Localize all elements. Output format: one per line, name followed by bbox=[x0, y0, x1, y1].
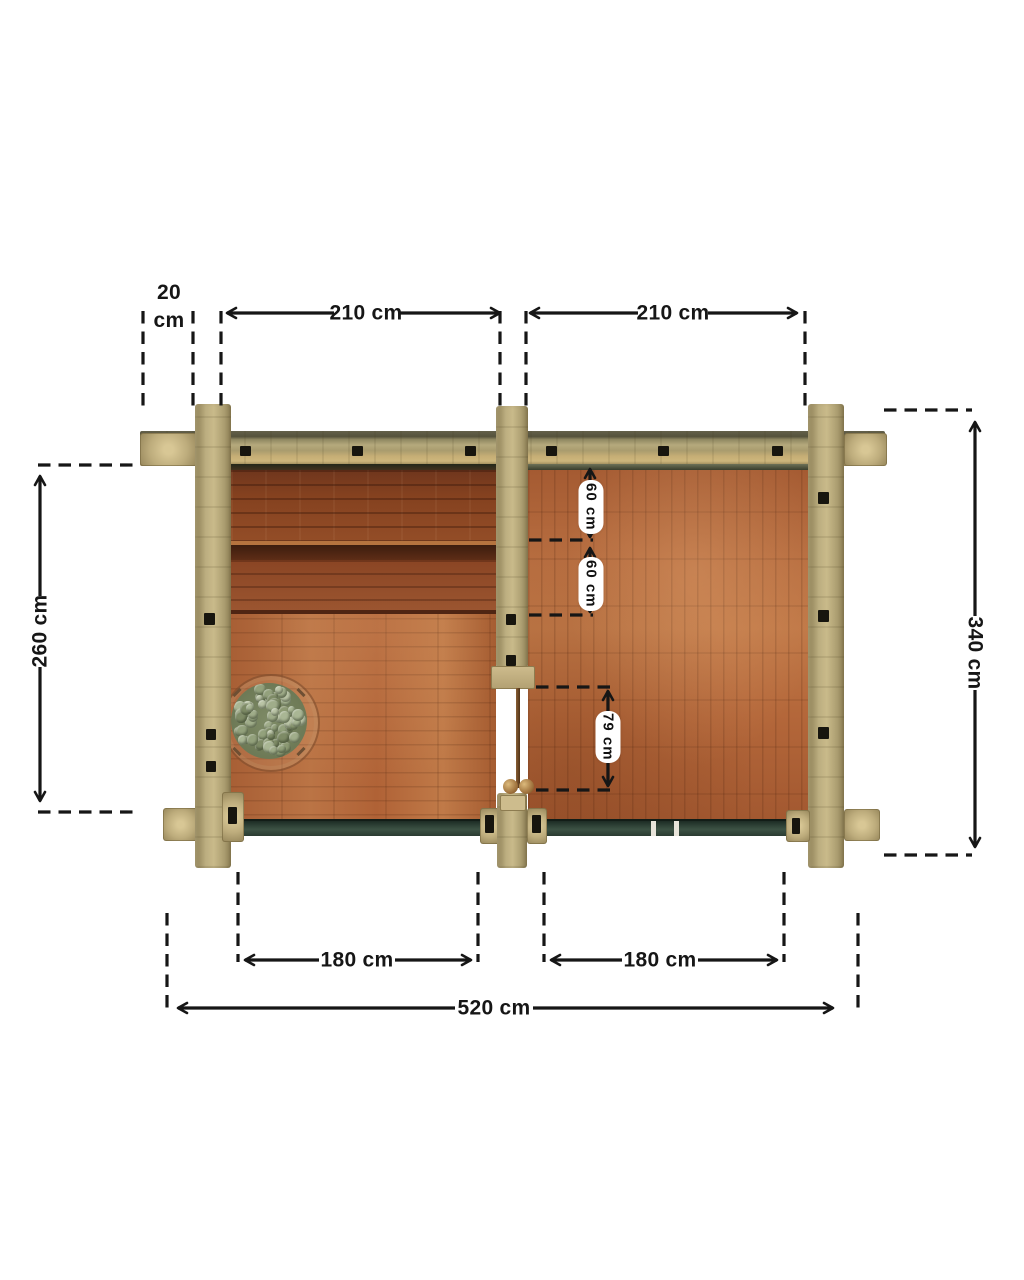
dim-wall-thickness-unit: cm bbox=[154, 307, 185, 335]
dim-label-overall-depth: 340 cm bbox=[965, 616, 986, 689]
dim-label-interior-depth: 260 cm bbox=[30, 594, 51, 667]
dim-pill-bench-row-2: 60 cm bbox=[579, 557, 604, 611]
dim-label-left-glass-width: 180 cm bbox=[320, 950, 393, 971]
dim-label-right-room-width: 210 cm bbox=[636, 303, 709, 324]
dim-pill-door-opening: 79 cm bbox=[596, 711, 621, 763]
dim-wall-thickness-value: 20 bbox=[154, 279, 185, 307]
dim-label-overall-width: 520 cm bbox=[457, 998, 530, 1019]
floor-plan-canvas: 20 cm 210 cm 210 cm 260 cm 340 cm 60 cm … bbox=[0, 0, 1024, 1280]
dim-pill-bench-row-1: 60 cm bbox=[579, 480, 604, 534]
dim-label-wall-thickness: 20 cm bbox=[154, 279, 185, 335]
dim-arrows bbox=[40, 313, 975, 1008]
dim-label-left-room-width: 210 cm bbox=[329, 303, 402, 324]
dim-extension-dashes bbox=[38, 311, 972, 1010]
dimension-lines bbox=[0, 0, 1024, 1280]
dim-label-right-glass-width: 180 cm bbox=[623, 950, 696, 971]
